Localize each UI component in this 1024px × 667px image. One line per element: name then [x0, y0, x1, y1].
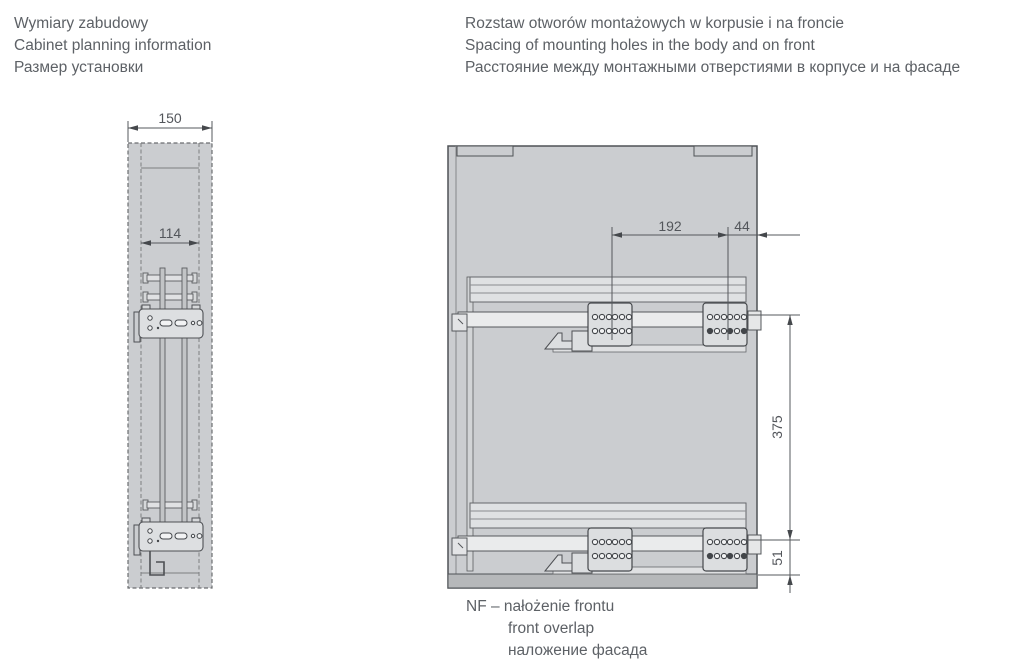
footnote: NF – nałożenie frontu front overlap нало…: [466, 596, 647, 662]
rear-bracket: [748, 535, 761, 554]
mounting-plate: [588, 303, 632, 346]
front-view-drawing: 150 114: [128, 110, 212, 588]
footnote-line-en: front overlap: [508, 618, 647, 640]
dim-label-front-offset: 44: [734, 218, 750, 234]
mounting-plate: [588, 528, 632, 571]
catalog-page: Wymiary zabudowy Cabinet planning inform…: [0, 0, 1024, 667]
mounting-plate: [703, 303, 747, 346]
bottom-panel: [448, 574, 757, 588]
dim-label-hole-spacing: 192: [658, 218, 682, 234]
footnote-line-pl: NF – nałożenie frontu: [466, 596, 647, 618]
rear-bracket: [748, 311, 761, 330]
dim-label-bottom-offset: 51: [769, 550, 785, 566]
upper-bracket: [134, 305, 203, 342]
top-rail-back: [694, 146, 752, 156]
dim-label-outer-width: 150: [158, 110, 182, 126]
top-rail-front: [457, 146, 513, 156]
footnote-line-ru: наложение фасада: [508, 640, 647, 662]
dim-label-inner-width: 114: [159, 225, 182, 241]
dimension-150: 150: [128, 110, 212, 142]
mounting-plate: [703, 528, 747, 571]
side-view-drawing: 192 44 375 51: [448, 146, 800, 593]
technical-drawings: 150 114: [0, 0, 1024, 667]
dim-label-vertical-spacing: 375: [769, 415, 785, 439]
